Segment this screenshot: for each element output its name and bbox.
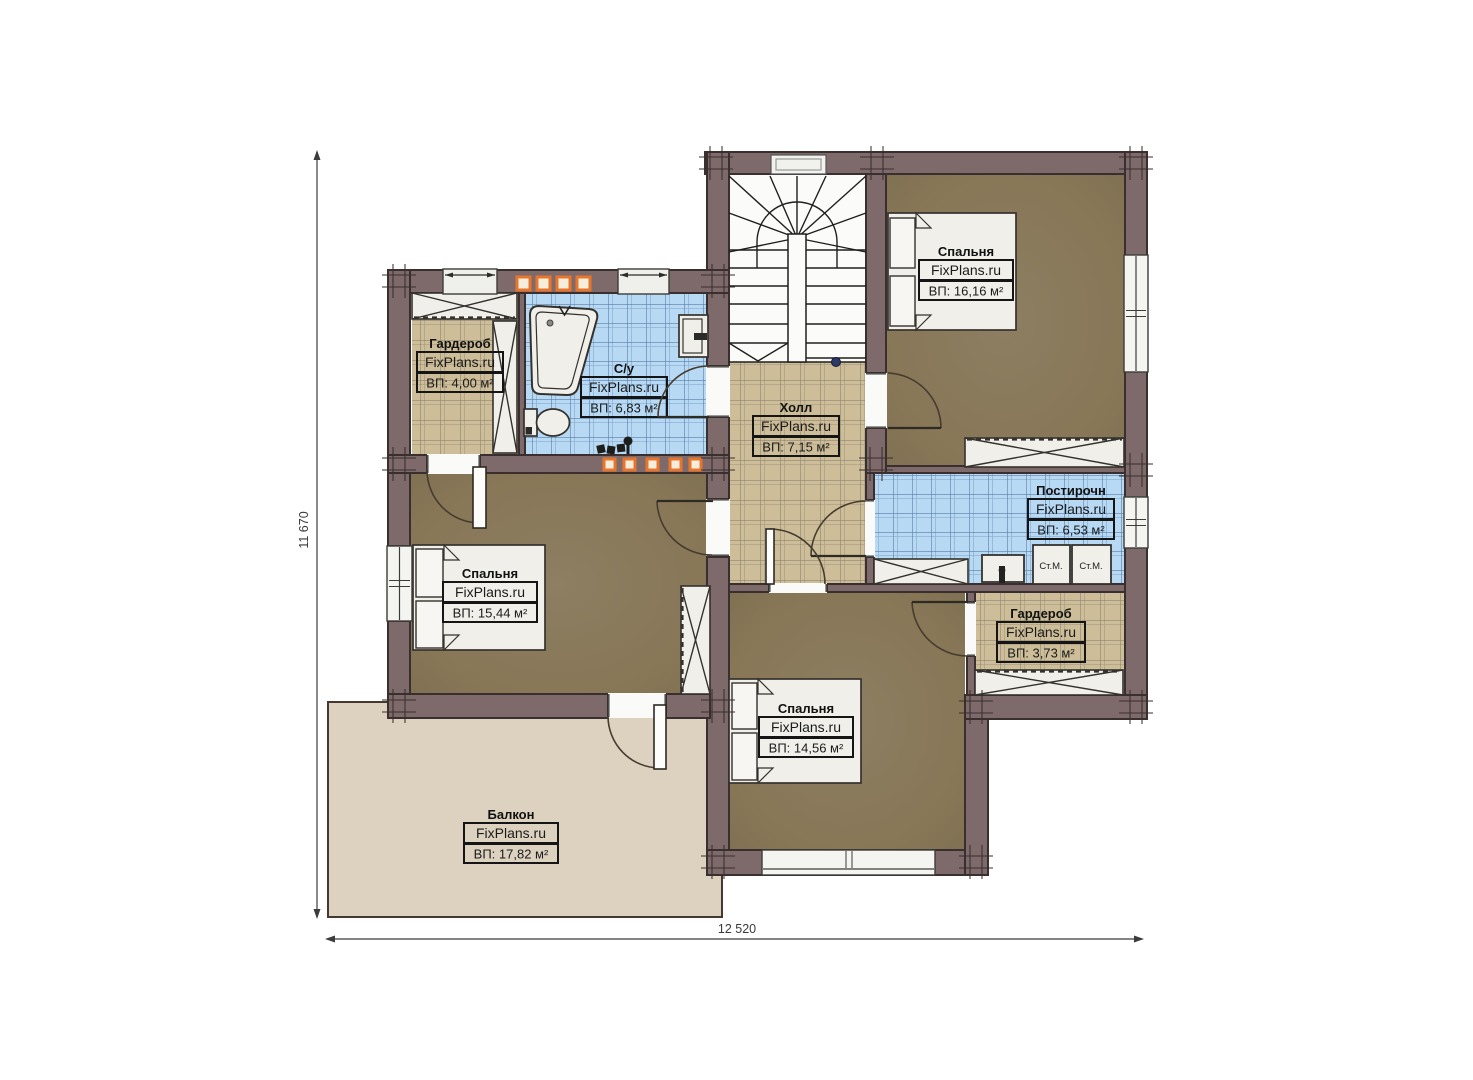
svg-text:ВП: 17,82 м²: ВП: 17,82 м² (474, 847, 549, 862)
svg-text:ВП: 3,73 м²: ВП: 3,73 м² (1007, 646, 1075, 661)
svg-text:С/у: С/у (614, 361, 635, 376)
svg-text:ВП: 7,15 м²: ВП: 7,15 м² (762, 440, 830, 455)
svg-text:Спальня: Спальня (462, 566, 518, 581)
svg-text:Постирочн: Постирочн (1036, 483, 1106, 498)
svg-text:FixPlans.ru: FixPlans.ru (589, 379, 659, 395)
svg-text:FixPlans.ru: FixPlans.ru (761, 418, 831, 434)
svg-text:FixPlans.ru: FixPlans.ru (931, 262, 1001, 278)
svg-text:ВП: 16,16 м²: ВП: 16,16 м² (929, 284, 1004, 299)
svg-text:Балкон: Балкон (488, 807, 535, 822)
svg-text:12 520: 12 520 (718, 922, 756, 936)
svg-text:ВП: 15,44 м²: ВП: 15,44 м² (453, 606, 528, 621)
svg-text:FixPlans.ru: FixPlans.ru (425, 354, 495, 370)
svg-text:ВП: 6,53 м²: ВП: 6,53 м² (1037, 523, 1105, 538)
svg-text:Холл: Холл (780, 400, 813, 415)
svg-text:ВП: 4,00 м²: ВП: 4,00 м² (426, 376, 494, 391)
svg-text:Ст.М.: Ст.М. (1039, 561, 1062, 572)
svg-text:ВП: 14,56 м²: ВП: 14,56 м² (769, 741, 844, 756)
svg-text:Спальня: Спальня (778, 701, 834, 716)
svg-text:Гардероб: Гардероб (1010, 606, 1071, 621)
svg-text:FixPlans.ru: FixPlans.ru (771, 719, 841, 735)
svg-text:FixPlans.ru: FixPlans.ru (476, 825, 546, 841)
svg-text:Ст.М.: Ст.М. (1079, 561, 1102, 572)
svg-text:11 670: 11 670 (297, 511, 311, 548)
svg-text:Спальня: Спальня (938, 244, 994, 259)
svg-text:FixPlans.ru: FixPlans.ru (1036, 501, 1106, 517)
svg-text:FixPlans.ru: FixPlans.ru (455, 584, 525, 600)
svg-text:Гардероб: Гардероб (429, 336, 490, 351)
svg-text:FixPlans.ru: FixPlans.ru (1006, 624, 1076, 640)
svg-text:ВП: 6,83 м²: ВП: 6,83 м² (590, 401, 658, 416)
